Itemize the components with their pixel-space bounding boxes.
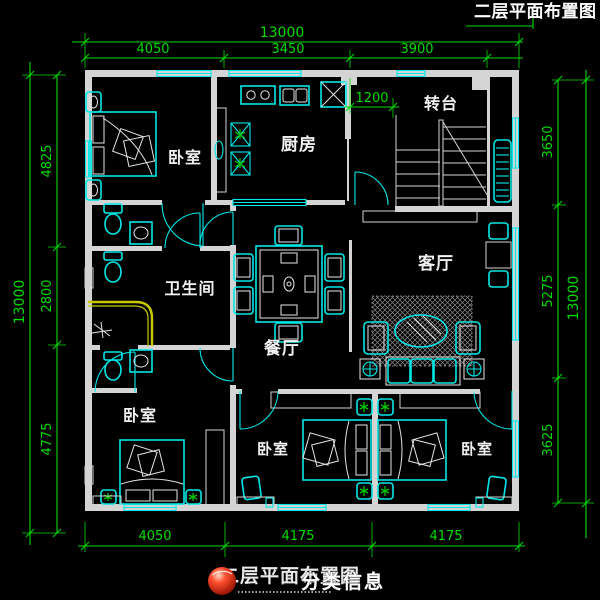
dim-bottom-seg2: 4175 [281,529,314,544]
floorplan-canvas: 卧室 厨房 转台 卫生间 餐厅 客厅 卧室 卧室 卧室 13000 4050 3… [0,0,600,600]
dim-left-seg3: 4775 [40,422,55,455]
dim-left-total: 13000 [12,280,28,325]
dim-top-seg2: 3450 [271,42,304,57]
dim-bottom-seg3: 4175 [429,529,462,544]
room-label-kitchen: 厨房 [281,134,317,155]
radiator [494,140,511,202]
bed-top-left [86,92,156,200]
dim-bottom-seg1: 4050 [138,529,171,544]
staircase [396,115,489,206]
dining-set [234,226,344,342]
room-label-living: 客厅 [417,253,454,274]
kitchen-fixtures [212,82,346,192]
room-label-bedroom-br: 卧室 [461,440,493,458]
living-set [360,211,511,385]
drawing-title-top-right: 二层平面布置图 [474,1,597,22]
room-label-dining: 餐厅 [264,338,300,359]
dim-top-total: 13000 [260,25,305,41]
dim-right-seg1: 3650 [541,125,556,158]
room-label-landing: 转台 [424,94,458,113]
dim-right-seg2: 5275 [541,274,556,307]
dim-top-seg3: 3900 [400,42,433,57]
watermark-text: 分类信息 [301,570,385,593]
dim-right-total: 13000 [566,276,582,321]
dim-left-seg2: 2800 [40,279,55,312]
dim-top-seg1: 4050 [136,42,169,57]
room-label-bedroom-bm: 卧室 [257,440,289,458]
dim-right-seg3: 3625 [541,423,556,456]
room-label-bathroom: 卫生间 [164,279,215,298]
dim-left-seg1: 4825 [40,144,55,177]
dim-interior-corridor: 1200 [355,91,388,106]
bed-bottom-left [93,430,224,510]
room-label-bedroom-bl: 卧室 [123,406,157,425]
room-label-bedroom-tl: 卧室 [168,148,202,167]
